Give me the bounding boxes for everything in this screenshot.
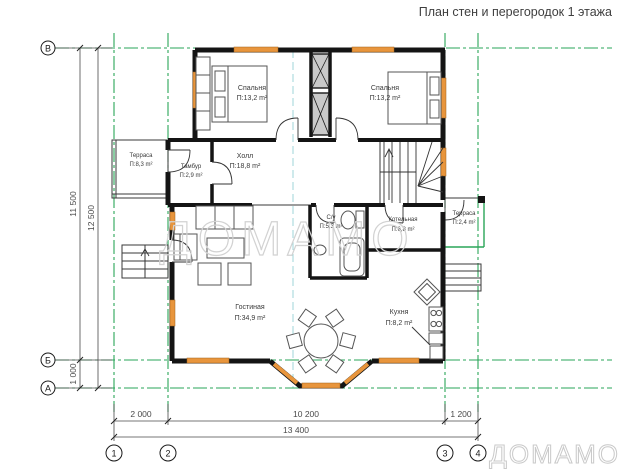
axis-col-1: 1 bbox=[111, 449, 116, 459]
dim-11500: 11 500 bbox=[68, 191, 78, 217]
dim-12500: 12 500 bbox=[86, 205, 96, 231]
room-tambour: Тамбур П:2,9 m² bbox=[180, 164, 203, 179]
room-name: Спальня bbox=[238, 85, 266, 92]
room-area: П:13,2 m² bbox=[370, 95, 401, 102]
dim-13400: 13 400 bbox=[283, 425, 309, 435]
room-terrace-right: Терраса П:2,4 m² bbox=[452, 211, 476, 226]
axis-bubbles-left: В Б А bbox=[41, 41, 55, 395]
dim-1000: 1 000 bbox=[68, 363, 78, 385]
axis-row-v: В bbox=[45, 44, 51, 54]
axis-col-2: 2 bbox=[165, 449, 170, 459]
room-name: Тамбур bbox=[181, 164, 202, 170]
dim-1200: 1 200 bbox=[450, 409, 472, 419]
room-area: П:8,2 m² bbox=[386, 320, 413, 327]
closet-shafts bbox=[312, 54, 329, 135]
watermark-center: ДОМАМО bbox=[159, 213, 414, 266]
bed-left bbox=[196, 57, 267, 130]
dimension-lines-bottom: 2 000 10 200 1 200 13 400 bbox=[111, 404, 481, 441]
floor-plan-sheet: План стен и перегородок 1 этажа 2 000 10… bbox=[0, 0, 627, 470]
steps-right bbox=[445, 264, 481, 291]
kitchen-fixtures bbox=[412, 279, 443, 359]
room-name: Холл bbox=[237, 153, 254, 160]
room-name: Кухня bbox=[390, 309, 409, 316]
axis-bubbles-bottom: 1 2 3 4 bbox=[106, 445, 486, 461]
room-name: Спальня bbox=[371, 85, 399, 92]
room-area: П:2,4 m² bbox=[453, 220, 476, 226]
watermark-bottom-right: ДОМАМО bbox=[489, 439, 620, 469]
dim-2000: 2 000 bbox=[130, 409, 152, 419]
room-area: П:34,9 m² bbox=[235, 315, 266, 322]
axis-col-4: 4 bbox=[475, 449, 480, 459]
dim-10200: 10 200 bbox=[293, 409, 319, 419]
room-kitchen: Кухня П:8,2 m² bbox=[386, 309, 413, 327]
axis-row-b: Б bbox=[45, 356, 51, 366]
dimension-lines-left: 11 500 12 500 1 000 bbox=[55, 45, 112, 391]
drawing-title: План стен и перегородок 1 этажа bbox=[419, 5, 612, 19]
room-hall: Холл П:18,8 m² bbox=[230, 153, 261, 170]
room-terrace-left: Терраса П:8,3 m² bbox=[129, 153, 153, 168]
room-area: П:13,2 m² bbox=[237, 95, 268, 102]
staircase bbox=[380, 142, 443, 203]
room-name: Терраса bbox=[452, 211, 476, 217]
room-name: Гостиная bbox=[235, 304, 265, 311]
room-area: П:2,9 m² bbox=[180, 173, 203, 179]
room-area: П:18,8 m² bbox=[230, 163, 261, 170]
room-area: П:8,3 m² bbox=[130, 162, 153, 168]
room-living: Гостиная П:34,9 m² bbox=[235, 304, 266, 322]
axis-col-3: 3 bbox=[442, 449, 447, 459]
floor-plan-drawing: План стен и перегородок 1 этажа 2 000 10… bbox=[0, 0, 627, 470]
terrace-left-structure bbox=[112, 140, 168, 198]
axis-row-a: А bbox=[45, 384, 51, 394]
room-name: Терраса bbox=[129, 153, 153, 159]
